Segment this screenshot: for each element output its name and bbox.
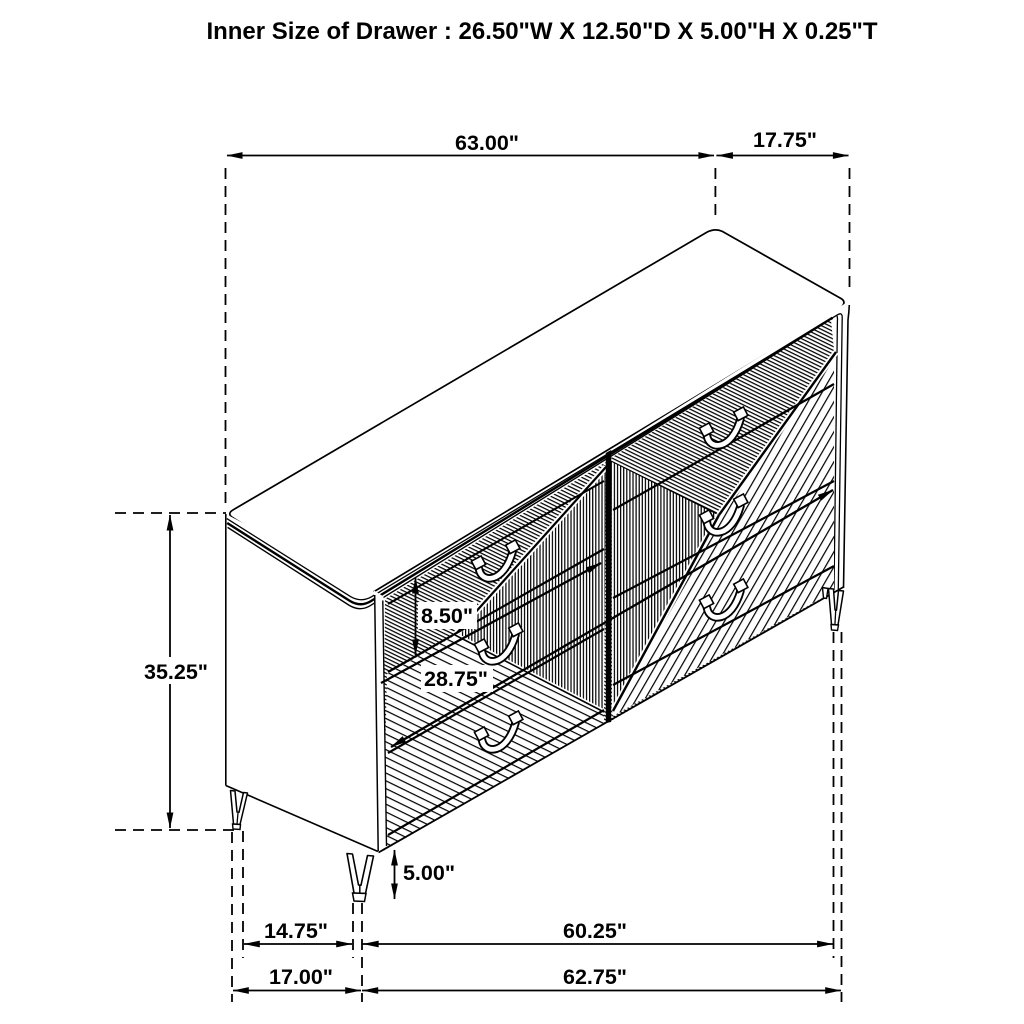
svg-text:28.75": 28.75" <box>424 667 488 691</box>
svg-text:63.00": 63.00" <box>455 131 519 155</box>
svg-text:62.75": 62.75" <box>563 965 627 989</box>
svg-text:14.75": 14.75" <box>264 919 328 943</box>
svg-text:17.00": 17.00" <box>269 965 333 989</box>
svg-text:60.25": 60.25" <box>563 919 627 943</box>
svg-text:17.75": 17.75" <box>753 128 817 152</box>
svg-text:8.50": 8.50" <box>421 604 473 628</box>
svg-text:35.25": 35.25" <box>144 660 208 684</box>
svg-text:5.00": 5.00" <box>403 861 455 885</box>
svg-text:Inner Size of Drawer : 26.50"W: Inner Size of Drawer : 26.50"W X 12.50"D… <box>206 18 877 45</box>
